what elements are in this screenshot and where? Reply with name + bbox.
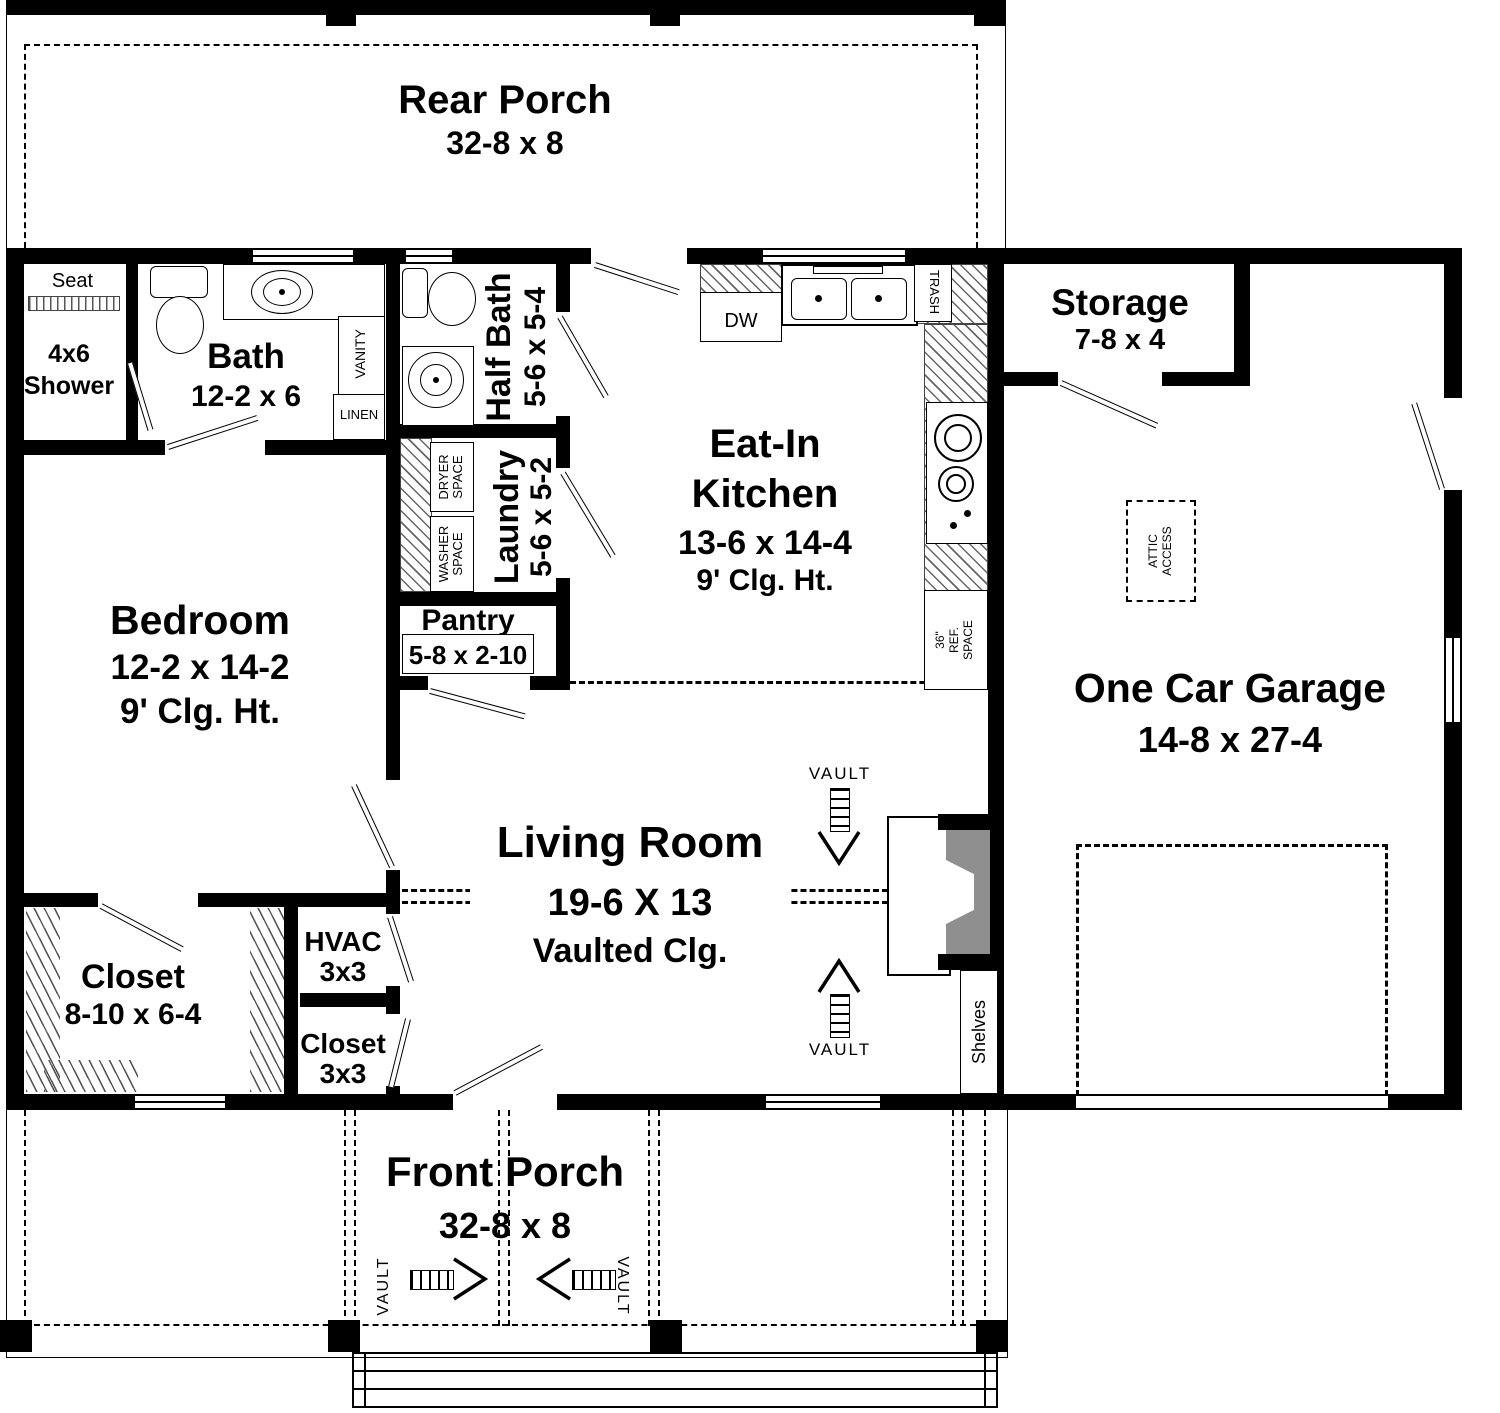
vault-arrowhead-left-icon [536, 1256, 572, 1302]
front-porch-name: Front Porch [330, 1148, 680, 1195]
storage-door [1060, 380, 1158, 428]
laundry-name: Laundry [488, 417, 522, 617]
rear-porch-name: Rear Porch [295, 78, 715, 123]
living-ceiling: Vaulted Clg. [430, 932, 830, 970]
floor-plan: { "rear_porch": {"name": "Rear Porch", "… [0, 0, 1500, 1413]
vanity-label: VANITY [353, 314, 369, 394]
kitchen-door [594, 262, 680, 295]
dishwasher-label: DW [700, 310, 782, 332]
sink-drain [875, 295, 882, 302]
step-line [354, 1388, 996, 1390]
step-line [354, 1370, 996, 1372]
shower-label-line1: 4x6 [14, 340, 124, 368]
stove-burner-small-inner [946, 474, 966, 494]
garage-door-area [1076, 844, 1388, 1096]
garage-service-door-opening [1444, 398, 1462, 490]
porch-post [976, 1320, 1008, 1352]
ref-line1: 36" [934, 610, 948, 670]
closet-door-opening [98, 893, 198, 907]
storage-dims: 7-8 x 4 [1010, 324, 1230, 356]
bath-window [253, 248, 353, 264]
step-edge [364, 1354, 366, 1406]
closet-door [100, 903, 184, 951]
garage-dims: 14-8 x 27-4 [1010, 720, 1450, 760]
pantry-dims: 5-8 x 2-10 [402, 634, 534, 674]
closet-name: Closet [38, 958, 228, 996]
vault-label-bottom: VAULT [798, 1040, 882, 1059]
stove-knob [964, 510, 971, 517]
stove-burner-large-inner [944, 424, 972, 452]
rear-porch-dims: 32-8 x 8 [295, 126, 715, 162]
kitchen-dims: 13-6 x 14-4 [600, 524, 930, 562]
rear-porch-beam [6, 0, 1006, 15]
storage-right-wall [1234, 264, 1250, 386]
living-dims: 19-6 X 13 [470, 882, 790, 925]
porch-post [0, 1320, 32, 1352]
closet2-name: Closet [294, 1028, 392, 1059]
vault-arrow-shaft [572, 1270, 616, 1290]
fireplace-band-bottom [938, 954, 992, 970]
front-door [454, 1044, 543, 1095]
shower-wall [126, 264, 138, 440]
porch-column-line [952, 1110, 964, 1326]
bedroom-name: Bedroom [40, 598, 360, 644]
bath-name: Bath [161, 337, 331, 376]
kitchen-ceiling: 9' Clg. Ht. [600, 564, 930, 598]
toilet-tank [150, 266, 208, 298]
living-window [766, 1094, 880, 1110]
hvac-name: HVAC [298, 926, 388, 957]
garage-service-door [1411, 402, 1445, 489]
porch-vault-label-right: VAULT [611, 1249, 631, 1323]
garage-name: One Car Garage [1010, 666, 1450, 712]
step-edge [984, 1354, 986, 1406]
washer-line2: SPACE [451, 516, 465, 592]
bath-dims: 12-2 x 6 [151, 380, 341, 414]
shelves-label: Shelves [969, 982, 989, 1082]
bedroom-ceiling: 9' Clg. Ht. [40, 692, 360, 731]
closet-dims: 8-10 x 6-4 [28, 998, 238, 1032]
laundry-hatch [400, 438, 432, 592]
washer-line1: WASHER [437, 516, 451, 592]
hvac-dims: 3x3 [298, 956, 388, 987]
sink-drain [815, 295, 822, 302]
ref-line2: REF. [948, 610, 962, 670]
porch-post [326, 0, 356, 26]
seat-label: Seat [25, 270, 120, 292]
kitchen-window [763, 248, 905, 264]
garage-door-opening [1076, 1094, 1388, 1110]
hvac-closet-divider [300, 993, 386, 1007]
front-porch-dims: 32-8 x 8 [330, 1206, 680, 1246]
dryer-line1: DRYER [437, 439, 451, 515]
shower-seat [28, 296, 120, 311]
porch-post [650, 1320, 682, 1352]
attic-line1: ATTIC [1146, 511, 1160, 591]
top-exterior-wall [6, 248, 1462, 264]
ref-space-label: 36" REF. SPACE [934, 610, 978, 670]
vanity-drain [279, 289, 285, 295]
toilet-tank [402, 268, 428, 318]
kitchen-name-line2: Kitchen [600, 472, 930, 517]
vault-arrow-shaft [830, 994, 850, 1038]
sink-drain [433, 377, 439, 383]
vault-arrowhead-right-icon [452, 1256, 488, 1302]
dryer-space-label: DRYER SPACE [437, 439, 467, 515]
porch-post [974, 0, 1006, 26]
vault-arrow-shaft [410, 1270, 454, 1290]
ref-line3: SPACE [962, 610, 976, 670]
laundry-dims: 5-6 x 5-2 [525, 417, 555, 617]
kitchen-name-line1: Eat-In [600, 422, 930, 467]
bedroom-closet-wall [24, 893, 386, 907]
porch-post [650, 0, 680, 26]
closet-rod-right [250, 908, 284, 1092]
toilet-bowl [428, 272, 476, 326]
attic-line2: ACCESS [1160, 511, 1174, 591]
washer-space-label: WASHER SPACE [437, 516, 467, 592]
front-door-opening [453, 1094, 557, 1110]
pantry-name: Pantry [398, 604, 538, 638]
pantry-door-opening [428, 676, 530, 690]
vault-label-top: VAULT [798, 764, 882, 783]
front-steps [352, 1352, 998, 1408]
fireplace-hearth [887, 816, 951, 976]
kitchen-door-opening [591, 248, 687, 264]
closet2-dims: 3x3 [294, 1058, 392, 1089]
storage-door-opening [1058, 372, 1162, 386]
fireplace-band-top [938, 814, 992, 830]
living-name: Living Room [420, 818, 840, 867]
dryer-line2: SPACE [451, 439, 465, 515]
half-bath-window [406, 248, 452, 264]
sink-faucet [813, 266, 883, 274]
stove-knob [950, 522, 957, 529]
storage-name: Storage [1010, 282, 1230, 323]
shower-label-line2: Shower [14, 372, 124, 400]
trash-label: TRASH [925, 262, 941, 322]
porch-vault-label-left: VAULT [375, 1249, 395, 1323]
bedroom-dims: 12-2 x 14-2 [40, 648, 360, 687]
closet-window [135, 1094, 225, 1110]
pantry-door [429, 688, 525, 719]
attic-access-label: ATTIC ACCESS [1146, 511, 1176, 591]
porch-post [328, 1320, 360, 1352]
closet-rod-bottom [44, 1060, 138, 1092]
